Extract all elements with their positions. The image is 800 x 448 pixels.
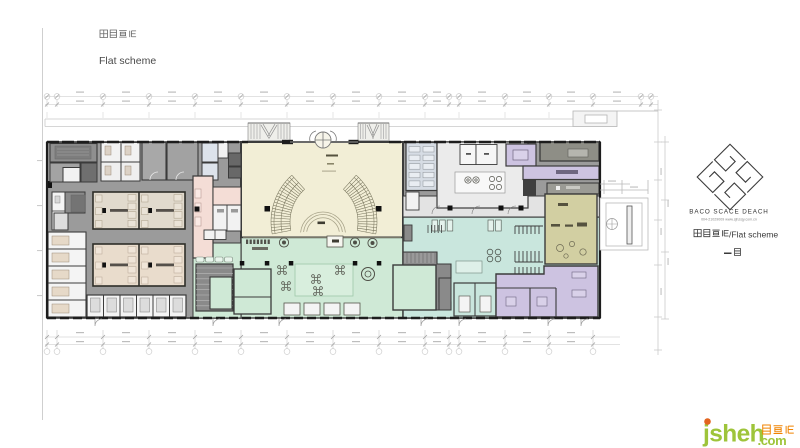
svg-text:Flat scheme: Flat scheme <box>99 55 156 67</box>
svg-text:BACO SCACE DEACH: BACO SCACE DEACH <box>689 209 768 216</box>
svg-text:jsheh: jsheh <box>702 421 764 448</box>
svg-text:004-21029009 www.sjhzsjy.com.c: 004-21029009 www.sjhzsjy.com.cn <box>701 218 757 222</box>
svg-text:/Flat scheme: /Flat scheme <box>729 230 778 240</box>
svg-text:.com: .com <box>758 433 787 448</box>
